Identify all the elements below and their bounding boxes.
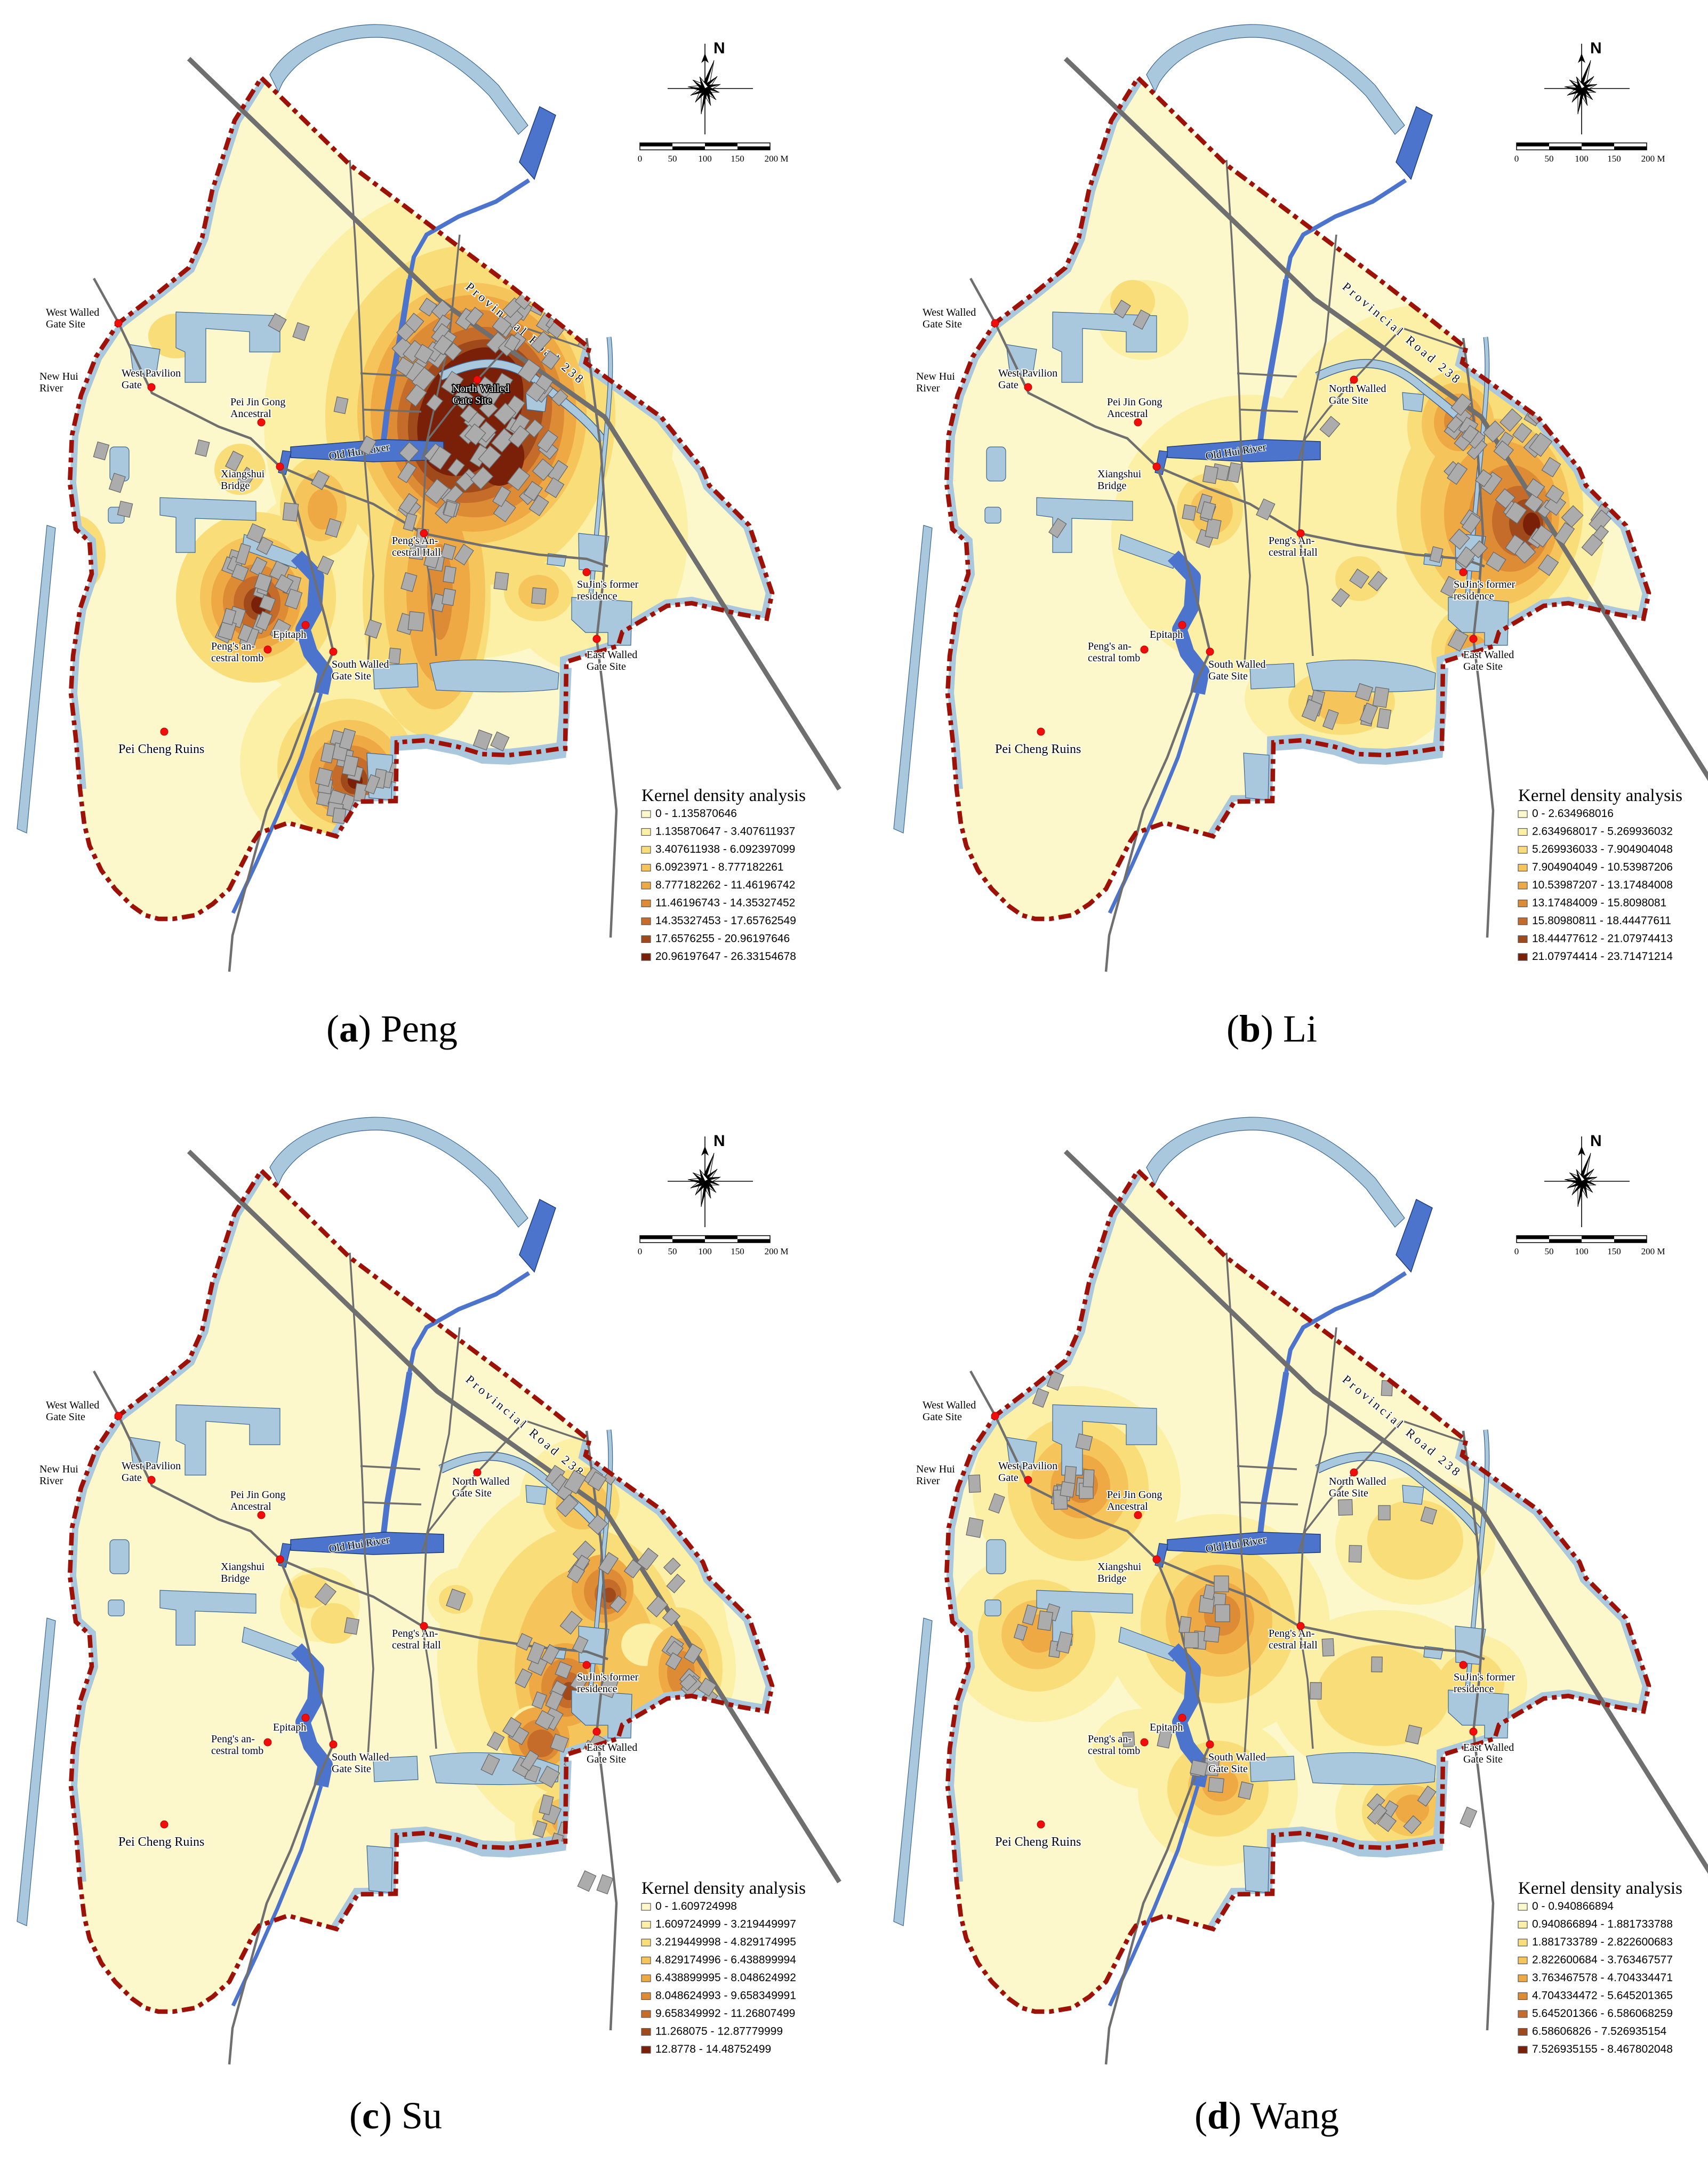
svg-text:North Walled: North Walled bbox=[1329, 1476, 1386, 1487]
svg-text:3.763467578 - 4.704334471: 3.763467578 - 4.704334471 bbox=[1532, 1972, 1673, 1984]
svg-text:3.219449998 - 4.829174995: 3.219449998 - 4.829174995 bbox=[655, 1936, 796, 1948]
svg-text:0.940866894 - 1.881733788: 0.940866894 - 1.881733788 bbox=[1532, 1918, 1673, 1931]
svg-text:8.048624993 - 9.658349991: 8.048624993 - 9.658349991 bbox=[655, 1990, 796, 2002]
svg-text:Kernel density analysis: Kernel density analysis bbox=[1518, 786, 1682, 805]
svg-text:0 - 2.634968016: 0 - 2.634968016 bbox=[1532, 807, 1614, 820]
svg-text:Gate Site: Gate Site bbox=[1329, 395, 1368, 406]
svg-text:Kernel density analysis: Kernel density analysis bbox=[1518, 1879, 1682, 1898]
svg-text:17.6576255 - 20.96197646: 17.6576255 - 20.96197646 bbox=[655, 933, 790, 945]
svg-text:5.645201366 - 6.586068259: 5.645201366 - 6.586068259 bbox=[1532, 2007, 1673, 2020]
svg-text:14.35327453 - 17.65762549: 14.35327453 - 17.65762549 bbox=[655, 915, 796, 927]
svg-text:4.829174996 - 6.438899994: 4.829174996 - 6.438899994 bbox=[655, 1954, 796, 1966]
svg-text:0 - 0.940866894: 0 - 0.940866894 bbox=[1532, 1900, 1614, 1912]
svg-text:Kernel density analysis: Kernel density analysis bbox=[641, 1879, 806, 1898]
svg-text:North Walled: North Walled bbox=[1329, 383, 1386, 395]
svg-text:12.8778 - 14.48752499: 12.8778 - 14.48752499 bbox=[655, 2043, 771, 2055]
svg-text:13.17484009 - 15.8098081: 13.17484009 - 15.8098081 bbox=[1532, 897, 1666, 909]
svg-text:Gate Site: Gate Site bbox=[452, 395, 492, 406]
svg-text:6.438899995 - 8.048624992: 6.438899995 - 8.048624992 bbox=[655, 1972, 796, 1984]
svg-text:North Walled: North Walled bbox=[452, 383, 509, 395]
svg-text:21.07974414 - 23.71471214: 21.07974414 - 23.71471214 bbox=[1532, 950, 1673, 963]
svg-text:0 - 1.135870646: 0 - 1.135870646 bbox=[655, 807, 737, 820]
svg-text:1.135870647 - 3.407611937: 1.135870647 - 3.407611937 bbox=[655, 826, 795, 838]
svg-text:0 - 1.609724998: 0 - 1.609724998 bbox=[655, 1900, 737, 1912]
svg-text:18.44477612 - 21.07974413: 18.44477612 - 21.07974413 bbox=[1532, 933, 1673, 945]
svg-text:11.46196743 - 14.35327452: 11.46196743 - 14.35327452 bbox=[655, 897, 795, 909]
svg-text:Gate Site: Gate Site bbox=[1329, 1487, 1368, 1499]
svg-text:6.0923971 - 8.777182261: 6.0923971 - 8.777182261 bbox=[655, 861, 784, 874]
svg-text:15.80980811 - 18.44477611: 15.80980811 - 18.44477611 bbox=[1532, 915, 1671, 927]
svg-text:Kernel density analysis: Kernel density analysis bbox=[641, 786, 806, 805]
svg-text:5.269936033 - 7.904904048: 5.269936033 - 7.904904048 bbox=[1532, 843, 1673, 855]
svg-text:7.526935155 - 8.467802048: 7.526935155 - 8.467802048 bbox=[1532, 2043, 1673, 2055]
svg-text:4.704334472 - 5.645201365: 4.704334472 - 5.645201365 bbox=[1532, 1990, 1673, 2002]
svg-text:8.777182262 - 11.46196742: 8.777182262 - 11.46196742 bbox=[655, 879, 795, 891]
svg-text:North Walled: North Walled bbox=[452, 1476, 509, 1487]
svg-text:11.268075 - 12.87779999: 11.268075 - 12.87779999 bbox=[655, 2025, 783, 2038]
svg-text:9.658349992 - 11.26807499: 9.658349992 - 11.26807499 bbox=[655, 2007, 795, 2020]
svg-text:1.609724999 - 3.219449997: 1.609724999 - 3.219449997 bbox=[655, 1918, 796, 1931]
svg-text:2.634968017 - 5.269936032: 2.634968017 - 5.269936032 bbox=[1532, 826, 1673, 838]
svg-text:7.904904049 - 10.53987206: 7.904904049 - 10.53987206 bbox=[1532, 861, 1673, 874]
svg-text:20.96197647 - 26.33154678: 20.96197647 - 26.33154678 bbox=[655, 950, 796, 963]
svg-text:10.53987207 - 13.17484008: 10.53987207 - 13.17484008 bbox=[1532, 879, 1673, 891]
svg-text:1.881733789 - 2.822600683: 1.881733789 - 2.822600683 bbox=[1532, 1936, 1673, 1948]
svg-text:6.58606826 - 7.526935154: 6.58606826 - 7.526935154 bbox=[1532, 2025, 1667, 2038]
svg-text:3.407611938 - 6.092397099: 3.407611938 - 6.092397099 bbox=[655, 843, 795, 855]
svg-text:2.822600684 - 3.763467577: 2.822600684 - 3.763467577 bbox=[1532, 1954, 1673, 1966]
svg-text:Gate Site: Gate Site bbox=[452, 1487, 492, 1499]
